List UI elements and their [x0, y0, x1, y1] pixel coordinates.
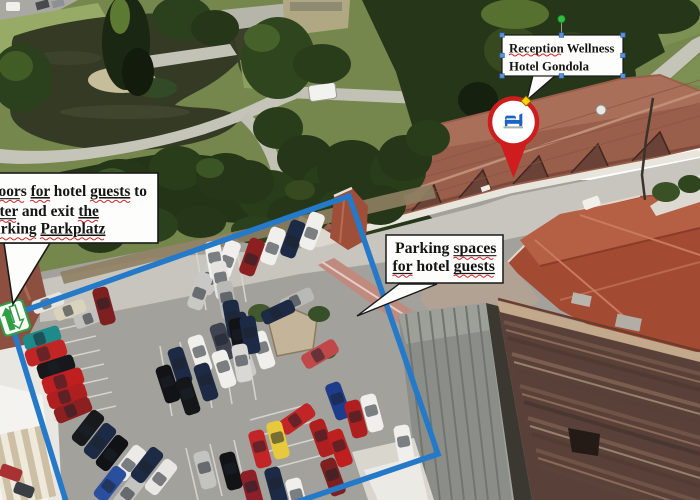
svg-text:for hotel guests: for hotel guests: [393, 258, 495, 275]
svg-text:Parking spaces: Parking spaces: [395, 240, 496, 257]
svg-text:arking Parkplatz: arking Parkplatz: [0, 221, 106, 238]
svg-text:oors for hotel guests to: oors for hotel guests to: [0, 183, 147, 200]
svg-text:Reception Wellness: Reception Wellness: [509, 42, 614, 56]
svg-text:nter and exit the: nter and exit the: [0, 203, 99, 220]
svg-text:Hotel Gondola: Hotel Gondola: [509, 60, 590, 74]
